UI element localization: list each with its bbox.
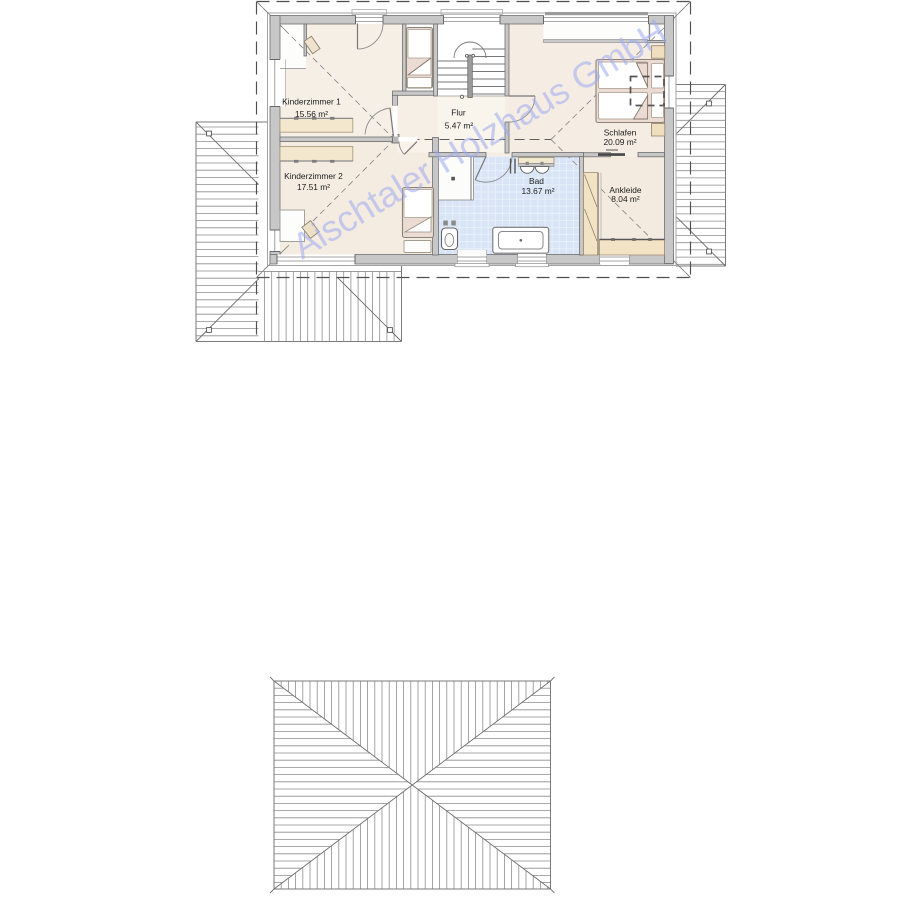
svg-text:Flur: Flur <box>451 108 466 118</box>
svg-text:15.56 m²: 15.56 m² <box>295 109 328 119</box>
svg-text:Kinderzimmer 1: Kinderzimmer 1 <box>282 97 341 107</box>
svg-text:Bad: Bad <box>529 176 544 186</box>
svg-text:13.67 m²: 13.67 m² <box>521 186 554 196</box>
svg-text:17.51 m²: 17.51 m² <box>297 182 330 192</box>
svg-text:8.04 m²: 8.04 m² <box>611 194 640 204</box>
svg-text:Kinderzimmer 2: Kinderzimmer 2 <box>284 171 343 181</box>
svg-text:20.09 m²: 20.09 m² <box>603 137 636 147</box>
svg-text:Schlafen: Schlafen <box>604 127 637 137</box>
